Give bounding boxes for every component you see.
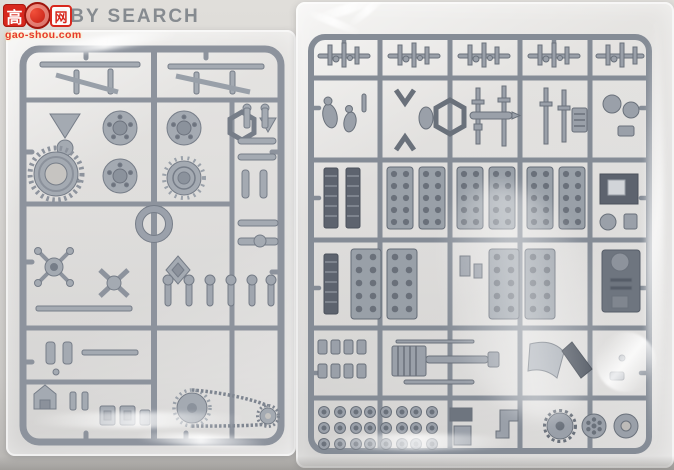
logo-seal-icon	[24, 2, 51, 29]
figure-parts	[321, 94, 366, 133]
bag-crinkle	[303, 2, 392, 28]
sprocket-wheel-part	[164, 158, 204, 198]
drive-chain-part	[174, 390, 279, 427]
hub-disc-parts	[545, 411, 639, 442]
logo-gao-char: 高	[6, 4, 22, 28]
right-sprue	[304, 28, 656, 460]
track-link-parts	[324, 167, 585, 229]
right-polybag	[296, 2, 674, 468]
engine-block-part	[602, 250, 640, 312]
product-photo: HOBBY SEARCH 高 网 gao-shou.com	[0, 0, 674, 470]
right-sprue-parts	[318, 43, 644, 450]
left-polybag	[6, 30, 296, 456]
watermark-site-url: gao-shou.com	[5, 29, 82, 41]
logo-wang-badge: 网	[50, 5, 72, 27]
table-edge-shadow	[0, 456, 674, 470]
watermark: HOBBY SEARCH 高 网 gao-shou.com	[3, 2, 223, 46]
toothed-idler-wheel-part	[30, 148, 82, 200]
logo-wang-char: 网	[54, 7, 67, 26]
logo-gao-badge: 高	[3, 4, 26, 27]
left-sprue	[16, 42, 292, 450]
gun-assembly-part	[392, 340, 499, 384]
